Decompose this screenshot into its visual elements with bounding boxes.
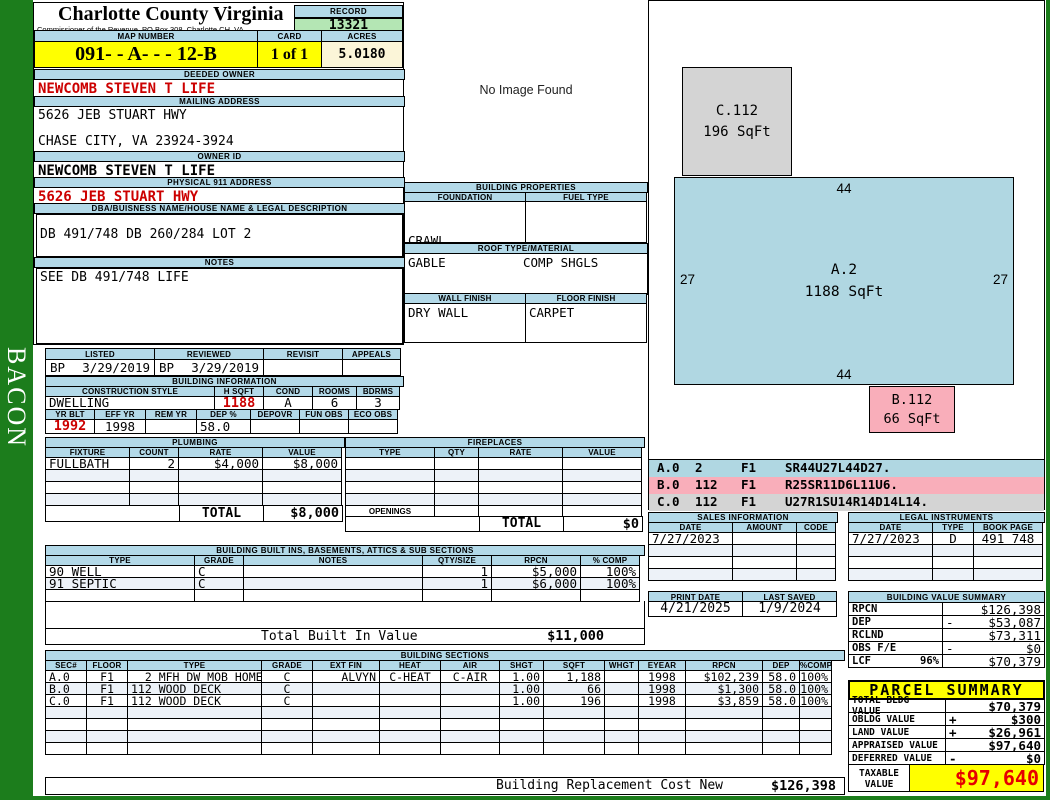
table-row: [45, 742, 845, 755]
cell: [732, 568, 797, 581]
spacer-cell: [45, 505, 180, 522]
cell: [543, 742, 605, 755]
depovr-value: [250, 419, 300, 434]
sales-table: 7/27/2023: [648, 532, 838, 581]
foundation-value: CRAWL STONE: [404, 201, 526, 243]
effyr-value: 1998: [94, 419, 146, 434]
building-info-year-values: 1992 1998 58.0: [45, 419, 404, 434]
cell: [638, 742, 686, 755]
legend-qty: 112: [695, 477, 741, 494]
rooms-value: 6: [312, 396, 357, 410]
photo-placeholder: No Image Found: [404, 0, 648, 180]
cell: [799, 742, 832, 755]
sketch-legend-row: C.0112F1U27R1SU14R14D14L14.: [649, 494, 1044, 511]
summary-row: APPRAISED VALUE$97,640: [848, 738, 1045, 752]
roof-value-cell: GABLE COMP SHGLS: [404, 253, 648, 295]
owner-id-value: NEWCOMB STEVEN T LIFE: [34, 163, 405, 178]
funobs-value: [299, 419, 349, 434]
summary-label: DEFERRED VALUE: [852, 753, 932, 764]
sketch-section-c-sqft: 196 SqFt: [703, 124, 770, 140]
legend-qty: 112: [695, 494, 741, 511]
legend-sec: C.0: [649, 494, 695, 511]
revisit-cell: [263, 359, 343, 376]
appeals-cell: [342, 359, 401, 376]
summary-label: LCF: [852, 655, 871, 667]
notes-box: SEE DB 491/748 LIFE: [36, 268, 403, 344]
record-label: RECORD: [294, 5, 403, 18]
rcn-label: Building Replacement Cost New: [496, 778, 723, 794]
built-ins-table: 90 WELLC1$5,000100%91 SEPTICC1$6,000100%: [45, 565, 645, 602]
legend-sec: B.0: [649, 477, 695, 494]
roof-type-value: GABLE: [408, 255, 523, 294]
summary-label: APPRAISED VALUE: [852, 740, 938, 751]
dimension-label-right: 27: [993, 272, 1008, 287]
built-ins-total-cell: Total Built In Value $11,000: [45, 628, 645, 645]
cell: [440, 742, 500, 755]
mailing-address-header: MAILING ADDRESS: [34, 96, 405, 107]
summary-row: DEFERRED VALUE-$0: [848, 751, 1045, 765]
fireplaces-total-value: $0: [563, 516, 643, 532]
building-sections-table: A.0F1 2 MFH DW MOB HOMECALVYNC-HEATC-AIR…: [45, 670, 845, 755]
built-ins-total-value: $11,000: [547, 629, 604, 644]
county-sidebar-label: BACON: [1, 347, 31, 447]
owner-card: Charlotte County Virginia Commissioner o…: [33, 2, 404, 345]
building-value-summary-table: RPCN$126,398DEP-$53,087RCLND$73,311OBS F…: [848, 602, 1045, 668]
legend-trace: U27R1SU14R14D14L14.: [785, 494, 1044, 511]
dimension-label-bottom: 44: [675, 367, 1013, 382]
review-values: BP 3/29/2019 BP 3/29/2019: [45, 359, 404, 376]
cell: [499, 742, 544, 755]
last-saved-value: 1/9/2024: [742, 601, 837, 617]
mailing-address-line: CHASE CITY, VA 23924-3924: [34, 134, 405, 147]
legend-floor: F1: [741, 477, 785, 494]
summary-label: RPCN: [852, 603, 877, 615]
legend-sec: A.0: [649, 460, 695, 477]
listed-cell: BP 3/29/2019: [45, 359, 155, 376]
sketch-panel: C.112 196 SqFt A.2 1188 SqFt 44 44 27 27…: [648, 0, 1045, 510]
summary-note: 96%: [920, 655, 939, 667]
mailing-address-line: [34, 121, 405, 134]
built-ins-spacer: [45, 601, 645, 629]
summary-row: LCF96%$70,379: [848, 654, 1045, 668]
foundation-line: CRAWL: [408, 233, 525, 243]
built-ins-total-row: Total Built In Value $11,000: [45, 628, 645, 645]
plumbing-total-value: $8,000: [263, 505, 343, 522]
legend-trace: SR44U27L44D27.: [785, 460, 1044, 477]
legend-floor: F1: [741, 460, 785, 477]
rcn-cell: Building Replacement Cost New $126,398: [45, 777, 845, 795]
deeded-owner-value: NEWCOMB STEVEN T LIFE: [34, 81, 405, 96]
floor-finish-value: CARPET: [525, 303, 647, 343]
sketch-section-a: A.2 1188 SqFt 44 44 27 27: [674, 177, 1014, 385]
summary-label: DEP: [852, 616, 871, 628]
plumbing-table: FULLBATH2$4,000$8,000: [45, 457, 345, 506]
cell: [648, 568, 733, 581]
taxable-value-row: TAXABLE VALUE $97,640: [848, 764, 1045, 792]
dates-values: 4/21/2025 1/9/2024: [648, 601, 838, 617]
notes-header: NOTES: [34, 257, 405, 268]
reviewed-cell: BP 3/29/2019: [154, 359, 264, 376]
yrblt-value: 1992: [45, 419, 95, 434]
legal-table: 7/27/2023D491 748: [848, 532, 1045, 581]
wall-floor-values: DRY WALL CARPET: [404, 303, 648, 343]
cell: [762, 742, 800, 755]
cell: [932, 568, 974, 581]
construction-style-value: DWELLING: [45, 396, 215, 410]
dep-pct-value: 58.0: [196, 419, 251, 434]
sketch-section-c-label: C.112: [716, 103, 758, 119]
legend-qty: 2: [695, 460, 741, 477]
summary-label: OBLDG VALUE: [852, 714, 915, 725]
cell: [261, 742, 313, 755]
sketch-section-a-label: A.2: [831, 262, 857, 278]
listed-by: BP: [50, 360, 65, 375]
cell: [848, 568, 933, 581]
sketch-legend: A.02F1SR44U27L44D27.B.0112F1R25SR11D6L11…: [649, 459, 1044, 511]
dimension-label-left: 27: [680, 272, 695, 287]
owner-id-header: OWNER ID: [34, 151, 405, 162]
cell: [86, 742, 128, 755]
print-date-value: 4/21/2025: [648, 601, 743, 617]
roof-material-value: COMP SHGLS: [523, 255, 598, 294]
physical-address-header: PHYSICAL 911 ADDRESS: [34, 177, 405, 188]
rcn-value: $126,398: [771, 778, 836, 794]
reviewed-date: 3/29/2019: [191, 360, 259, 375]
ecoobs-value: [348, 419, 398, 434]
card-value: 1 of 1: [257, 41, 322, 68]
physical-address-value: 5626 JEB STUART HWY: [34, 189, 405, 204]
roof-values: GABLE COMP SHGLS: [404, 253, 648, 295]
listed-date: 3/29/2019: [82, 360, 150, 375]
dba-header: DBA/BUISNESS NAME/HOUSE NAME & LEGAL DES…: [34, 203, 405, 214]
sketch-legend-row: A.02F1SR44U27L44D27.: [649, 460, 1044, 477]
plumbing-total-row: TOTAL $8,000: [45, 505, 345, 522]
cell: [45, 742, 87, 755]
wall-finish-value: DRY WALL: [404, 303, 526, 343]
legal-description-box: DB 491/748 DB 260/284 LOT 2: [36, 214, 403, 257]
reviewed-by: BP: [159, 360, 174, 375]
built-ins-total-label: Total Built In Value: [261, 629, 418, 644]
acres-value: 5.0180: [321, 41, 403, 68]
map-value-row: 091- - A- - - 12-B 1 of 1 5.0180: [34, 41, 405, 68]
cell: [685, 742, 763, 755]
summary-label: LAND VALUE: [852, 727, 909, 738]
cell: [312, 742, 380, 755]
summary-label: OBS F/E: [852, 642, 896, 654]
summary-operator: -: [946, 615, 954, 630]
plumbing-total-label: TOTAL: [179, 505, 264, 522]
remyr-value: [145, 419, 197, 434]
dimension-label-top: 44: [675, 181, 1013, 196]
county-title: Charlotte County Virginia: [58, 3, 284, 26]
fireplaces-total-row: TOTAL $0: [345, 516, 645, 532]
taxable-value: $97,640: [955, 766, 1039, 790]
bdrms-value: 3: [356, 396, 400, 410]
cell: [379, 742, 441, 755]
map-number-value: 091- - A- - - 12-B: [34, 41, 258, 68]
legend-floor: F1: [741, 494, 785, 511]
table-row: [848, 568, 1045, 581]
summary-label: RCLND: [852, 629, 884, 641]
cell: [127, 742, 262, 755]
legend-trace: R25SR11D6L11U6.: [785, 477, 1044, 494]
sketch-section-b-label: B.112: [892, 392, 933, 408]
property-record-card: BACON Charlotte County Virginia Commissi…: [0, 0, 1050, 800]
legal-description: DB 491/748 DB 260/284 LOT 2: [37, 215, 402, 242]
fuel-type-value: [525, 201, 647, 243]
no-image-text: No Image Found: [479, 83, 572, 97]
sketch-legend-row: B.0112F1R25SR11D6L11U6.: [649, 477, 1044, 494]
notes-text: SEE DB 491/748 LIFE: [37, 269, 402, 285]
summary-operator: +: [949, 725, 957, 740]
sketch-section-a-sqft: 1188 SqFt: [805, 284, 884, 300]
sketch-section-b: B.112 66 SqFt: [869, 386, 955, 433]
sketch-section-b-sqft: 66 SqFt: [884, 411, 941, 427]
table-row: [648, 568, 838, 581]
cond-value: A: [263, 396, 313, 410]
cell: [604, 742, 639, 755]
building-info-style-values: DWELLING 1188 A 6 3: [45, 396, 404, 410]
summary-operator: -: [946, 641, 954, 656]
cell: [796, 568, 836, 581]
taxable-value-cell: $97,640: [909, 764, 1044, 792]
sketch-section-c: C.112 196 SqFt: [682, 67, 792, 176]
rcn-row: Building Replacement Cost New $126,398: [45, 777, 845, 795]
hsqft-value: 1188: [214, 396, 264, 410]
summary-value: $70,379: [988, 654, 1041, 669]
taxable-value-label: TAXABLE VALUE: [848, 764, 910, 792]
spacer-cell: [345, 516, 480, 532]
deeded-owner-header: DEEDED OWNER: [34, 69, 405, 80]
fireplaces-table: [345, 457, 645, 506]
mailing-address-line: 5626 JEB STUART HWY: [34, 108, 405, 121]
foundation-fuel-values: CRAWL STONE: [404, 201, 648, 243]
fireplaces-total-label: TOTAL: [479, 516, 564, 532]
parcel-summary-table: TOTAL BLDG VALUE$70,379OBLDG VALUE+$300L…: [848, 699, 1045, 765]
cell: [973, 568, 1043, 581]
